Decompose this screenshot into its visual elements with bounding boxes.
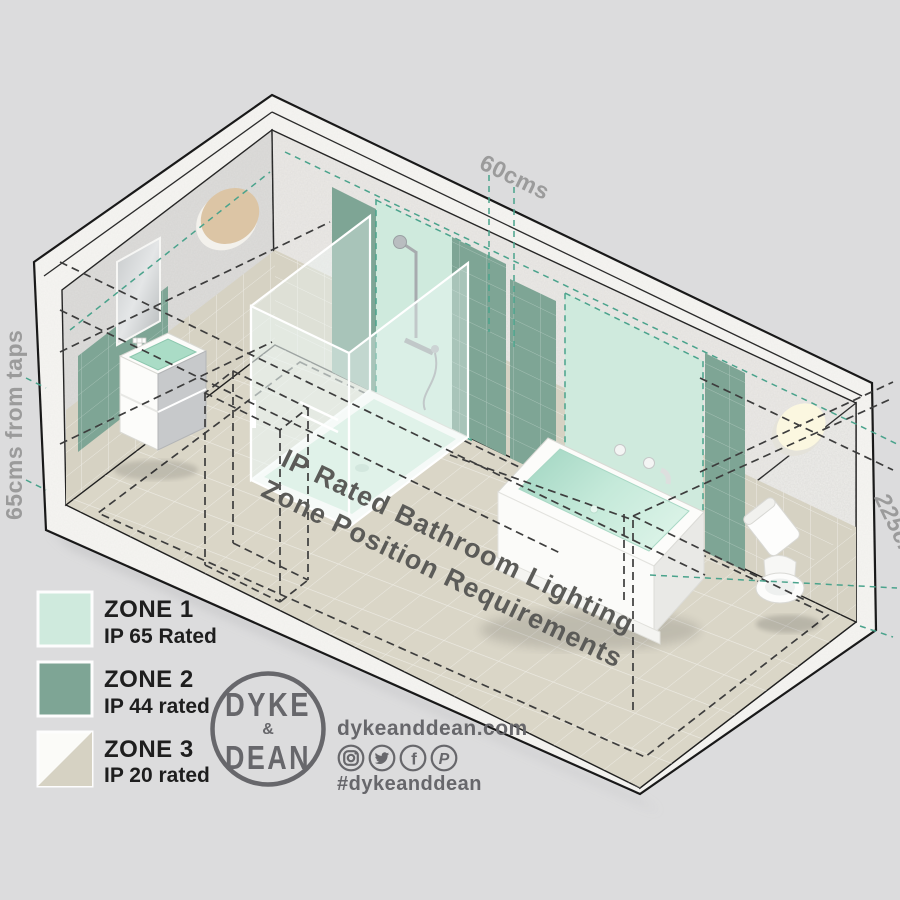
legend-item-zone3: ZONE 3 IP 20 rated bbox=[38, 732, 210, 787]
website-text: dykeanddean.com bbox=[337, 717, 528, 740]
hashtag-text: #dykeanddean bbox=[337, 773, 482, 795]
zone2-swatch bbox=[38, 662, 92, 716]
svg-text:f: f bbox=[411, 750, 417, 769]
svg-text:P: P bbox=[439, 751, 450, 768]
legend-item-zone1: ZONE 1 IP 65 Rated bbox=[38, 592, 217, 648]
legend: ZONE 1 IP 65 Rated ZONE 2 IP 44 rated ZO… bbox=[38, 592, 217, 787]
measure-65cms-from-taps: 65cms from taps bbox=[1, 330, 27, 520]
logo-dyke: DYKE bbox=[225, 686, 311, 723]
zone3-rating: IP 20 rated bbox=[104, 764, 210, 787]
bath-drain bbox=[590, 505, 598, 513]
logo-ampersand: & bbox=[262, 721, 274, 738]
zone2-rating: IP 44 rated bbox=[104, 695, 210, 718]
zone3-name: ZONE 3 bbox=[104, 736, 194, 763]
zone1-rating: IP 65 Rated bbox=[104, 625, 217, 648]
zone2-name: ZONE 2 bbox=[104, 666, 194, 693]
zone1-name: ZONE 1 bbox=[104, 596, 194, 623]
legend-item-zone2: ZONE 2 IP 44 rated bbox=[38, 662, 210, 718]
zone1-swatch bbox=[38, 592, 92, 646]
bathroom-zones-infographic: IP Rated Bathroom Lighting Zone Position… bbox=[0, 0, 900, 900]
logo-dean: DEAN bbox=[225, 739, 311, 776]
